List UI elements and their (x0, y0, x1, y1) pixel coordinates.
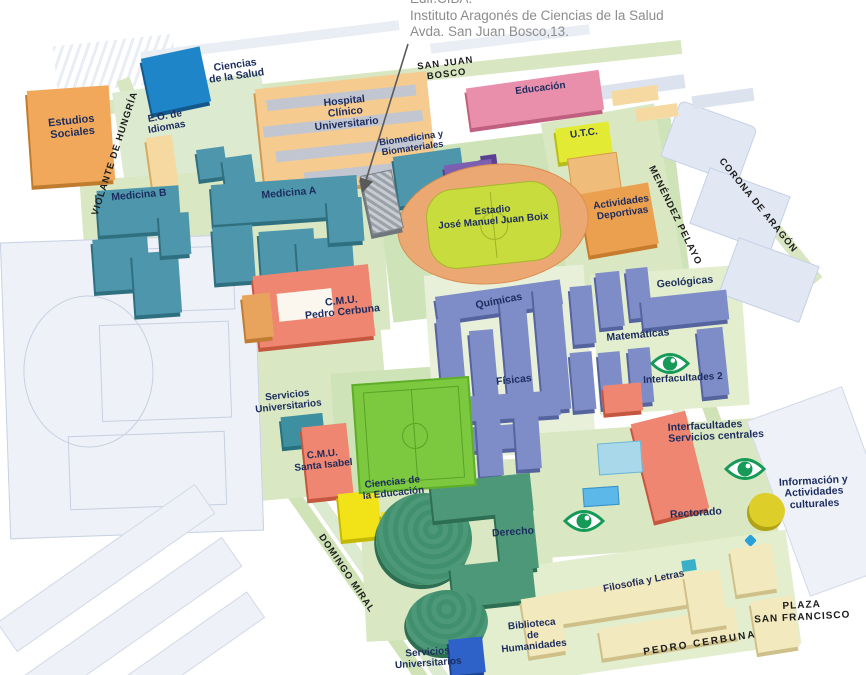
street-san-juan-bosco: SAN JUAN BOSCO (395, 52, 497, 86)
campus-map: Estudios Sociales Ciencias de la Salud E… (0, 0, 866, 675)
label-informacion-actividades: Información y Actividades culturales (763, 473, 865, 512)
eye-icon-interfacultades-2 (650, 350, 690, 377)
building-fisicas (476, 417, 504, 477)
building-medicina-a (212, 225, 256, 284)
building-fisicas (514, 413, 542, 470)
building-filosofia-letras (730, 543, 779, 595)
building-medicina-b (132, 250, 182, 315)
building-medicina-b (159, 212, 192, 256)
annotation-line-3: Avda. San Juan Bosco,13. (410, 24, 664, 41)
annotation-block: Edif.CIBA. Instituto Aragonés de Ciencia… (410, 0, 664, 41)
city-strip (691, 88, 754, 110)
street-plaza-san-francisco: PLAZA SAN FRANCISCO (751, 597, 852, 626)
city-block-detail (99, 321, 232, 422)
annotation-line-2: Instituto Aragonés de Ciencias de la Sal… (410, 8, 664, 25)
building-sciences (570, 351, 597, 411)
pool (582, 486, 619, 507)
eye-icon-servicios-centrales (724, 455, 766, 483)
annotation-line-1: Edif.CIBA. (410, 0, 664, 8)
eye-icon-derecho (563, 507, 605, 535)
building-medicina-a (327, 197, 365, 243)
building-orange-small (242, 293, 274, 340)
pool-strip (597, 441, 643, 476)
